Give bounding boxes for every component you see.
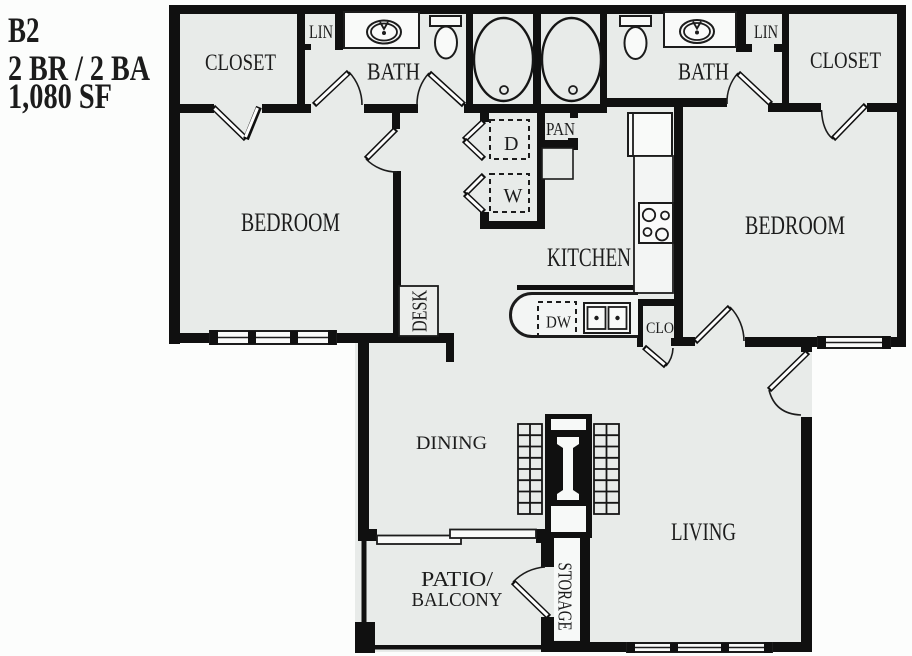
svg-text:CLO: CLO — [646, 320, 674, 337]
svg-text:1,080 SF: 1,080 SF — [8, 76, 112, 116]
svg-text:BATH: BATH — [678, 60, 729, 86]
svg-text:BEDROOM: BEDROOM — [241, 208, 340, 237]
svg-text:CLOSET: CLOSET — [810, 48, 881, 73]
svg-text:PAN: PAN — [546, 119, 575, 139]
svg-text:BEDROOM: BEDROOM — [745, 211, 845, 240]
svg-text:LIN: LIN — [754, 22, 778, 43]
svg-text:PATIO/: PATIO/ — [421, 567, 493, 591]
svg-text:LIN: LIN — [309, 22, 333, 43]
svg-text:BATH: BATH — [367, 60, 420, 86]
svg-text:W: W — [504, 185, 523, 207]
svg-text:DESK: DESK — [408, 290, 432, 332]
svg-text:KITCHEN: KITCHEN — [547, 243, 631, 272]
svg-text:STORAGE: STORAGE — [554, 563, 576, 631]
svg-text:DINING: DINING — [416, 433, 487, 454]
svg-text:CLOSET: CLOSET — [205, 50, 276, 75]
svg-text:DW: DW — [546, 313, 572, 332]
svg-text:B2: B2 — [8, 10, 40, 50]
svg-text:D: D — [504, 133, 518, 155]
svg-text:LIVING: LIVING — [671, 519, 736, 546]
svg-text:BALCONY: BALCONY — [412, 589, 503, 611]
